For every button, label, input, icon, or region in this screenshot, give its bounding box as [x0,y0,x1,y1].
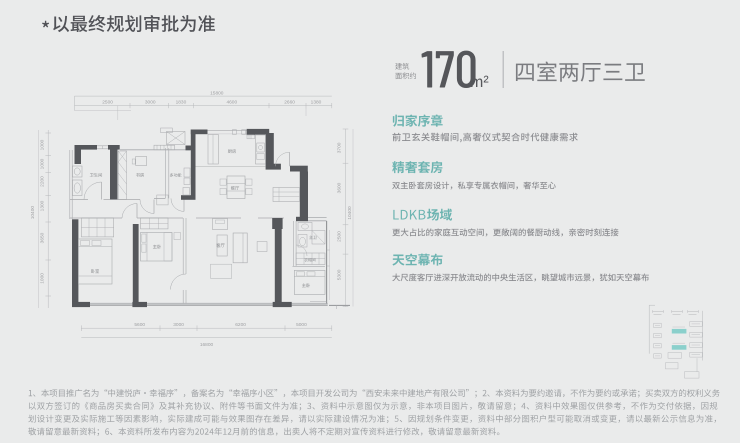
svg-text:3000: 3000 [145,99,156,105]
svg-text:1000: 1000 [40,139,46,150]
svg-text:15800: 15800 [210,90,224,96]
svg-text:3650: 3650 [40,232,46,243]
svg-text:1830: 1830 [176,99,187,105]
svg-text:6200: 6200 [235,322,246,328]
svg-text:1000: 1000 [40,273,46,284]
svg-text:2500: 2500 [336,231,342,242]
svg-text:1000: 1000 [40,158,46,169]
svg-text:10400: 10400 [347,206,353,220]
svg-text:2500: 2500 [102,99,113,105]
svg-text:5000: 5000 [296,322,307,328]
svg-text:3000: 3000 [173,322,184,328]
svg-text:5300: 5300 [336,269,342,280]
svg-text:1380: 1380 [311,99,322,105]
svg-text:4600: 4600 [226,99,237,105]
svg-text:2660: 2660 [284,99,295,105]
svg-text:1300: 1300 [40,200,46,211]
svg-text:m²: m² [470,74,489,91]
svg-text:3600: 3600 [336,182,342,193]
svg-text:3700: 3700 [336,142,342,153]
svg-text:2200: 2200 [40,176,46,187]
svg-text:10400: 10400 [30,206,36,220]
svg-text:16800: 16800 [200,342,214,348]
svg-text:5600: 5600 [134,322,145,328]
